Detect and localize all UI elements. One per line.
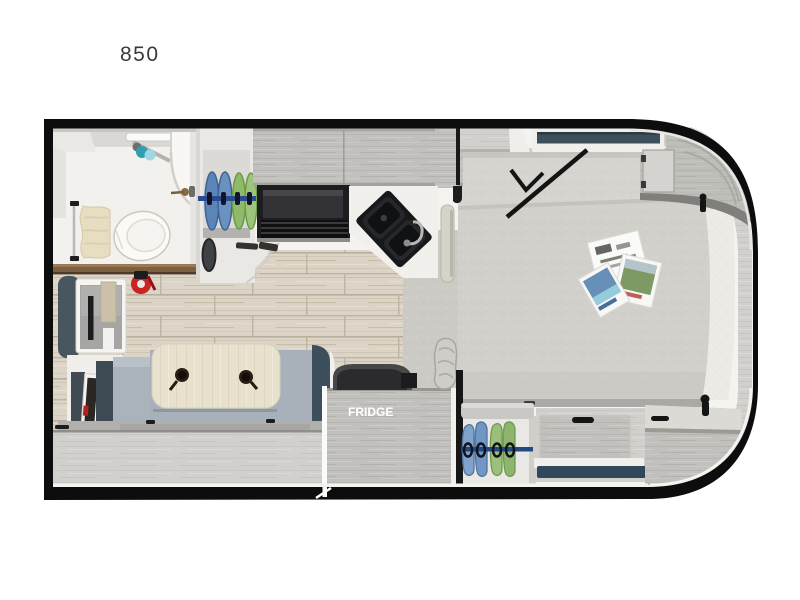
- svg-text:FRIDGE: FRIDGE: [348, 405, 393, 419]
